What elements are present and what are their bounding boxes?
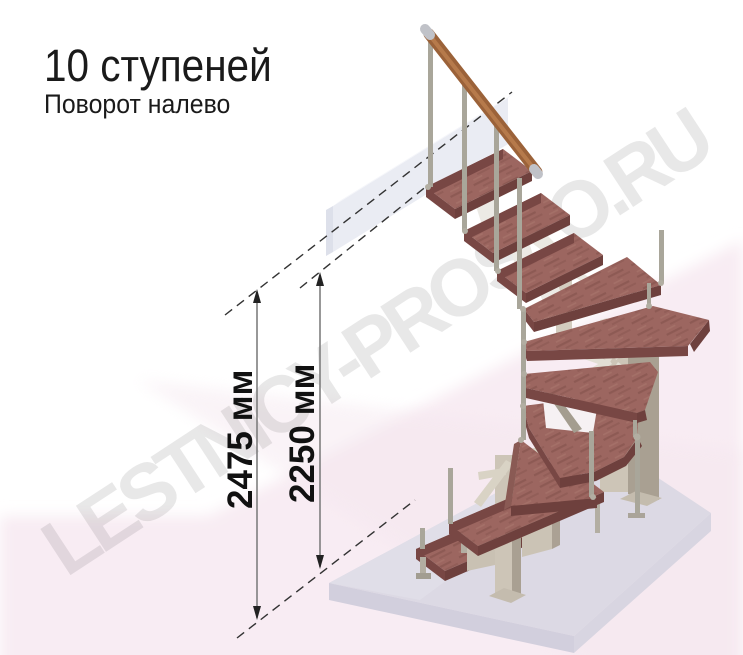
svg-text:10 ступеней: 10 ступеней (44, 41, 272, 91)
svg-text:2475 мм: 2475 мм (221, 370, 260, 509)
svg-text:2250 мм: 2250 мм (283, 364, 322, 503)
svg-text:Поворот налево: Поворот налево (44, 90, 230, 119)
